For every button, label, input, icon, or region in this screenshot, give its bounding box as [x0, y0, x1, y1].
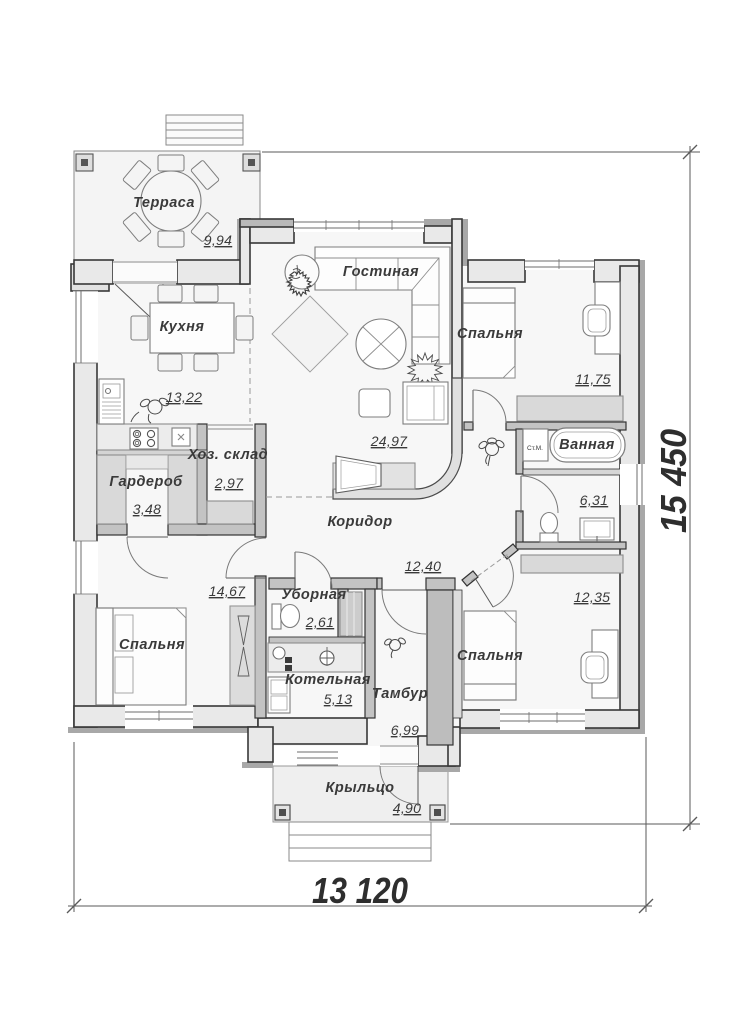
svg-text:3,48: 3,48 [133, 501, 161, 517]
svg-text:6,31: 6,31 [580, 492, 608, 508]
svg-text:14,67: 14,67 [209, 583, 246, 599]
svg-text:Ст.М.: Ст.М. [527, 445, 543, 452]
svg-text:9,94: 9,94 [204, 232, 232, 248]
svg-text:Коридор: Коридор [327, 514, 392, 530]
svg-text:Хоз. склад: Хоз. склад [187, 447, 268, 463]
svg-text:15 450: 15 450 [653, 429, 694, 533]
svg-text:13 120: 13 120 [312, 870, 408, 911]
svg-text:4,90: 4,90 [393, 800, 421, 816]
svg-text:Ванная: Ванная [559, 437, 615, 453]
svg-text:Котельная: Котельная [285, 672, 371, 688]
svg-text:5,13: 5,13 [324, 691, 352, 707]
svg-text:12,35: 12,35 [574, 589, 611, 605]
svg-text:6,99: 6,99 [391, 722, 419, 738]
svg-text:Терраса: Терраса [133, 195, 195, 211]
svg-text:Крыльцо: Крыльцо [326, 780, 395, 796]
svg-text:2,97: 2,97 [214, 475, 244, 491]
svg-text:13,22: 13,22 [166, 389, 203, 405]
svg-text:Кухня: Кухня [160, 319, 205, 335]
svg-text:Уборная: Уборная [281, 587, 346, 603]
svg-text:Спальня: Спальня [457, 326, 523, 342]
svg-text:11,75: 11,75 [575, 371, 611, 387]
svg-text:Тамбур: Тамбур [372, 686, 428, 702]
svg-text:Спальня: Спальня [119, 637, 185, 653]
svg-text:Гостиная: Гостиная [343, 264, 419, 280]
svg-text:24,97: 24,97 [370, 433, 408, 449]
svg-text:2,61: 2,61 [305, 614, 334, 630]
svg-text:12,40: 12,40 [405, 558, 442, 574]
svg-text:Гардероб: Гардероб [109, 474, 183, 490]
svg-text:Спальня: Спальня [457, 648, 523, 664]
